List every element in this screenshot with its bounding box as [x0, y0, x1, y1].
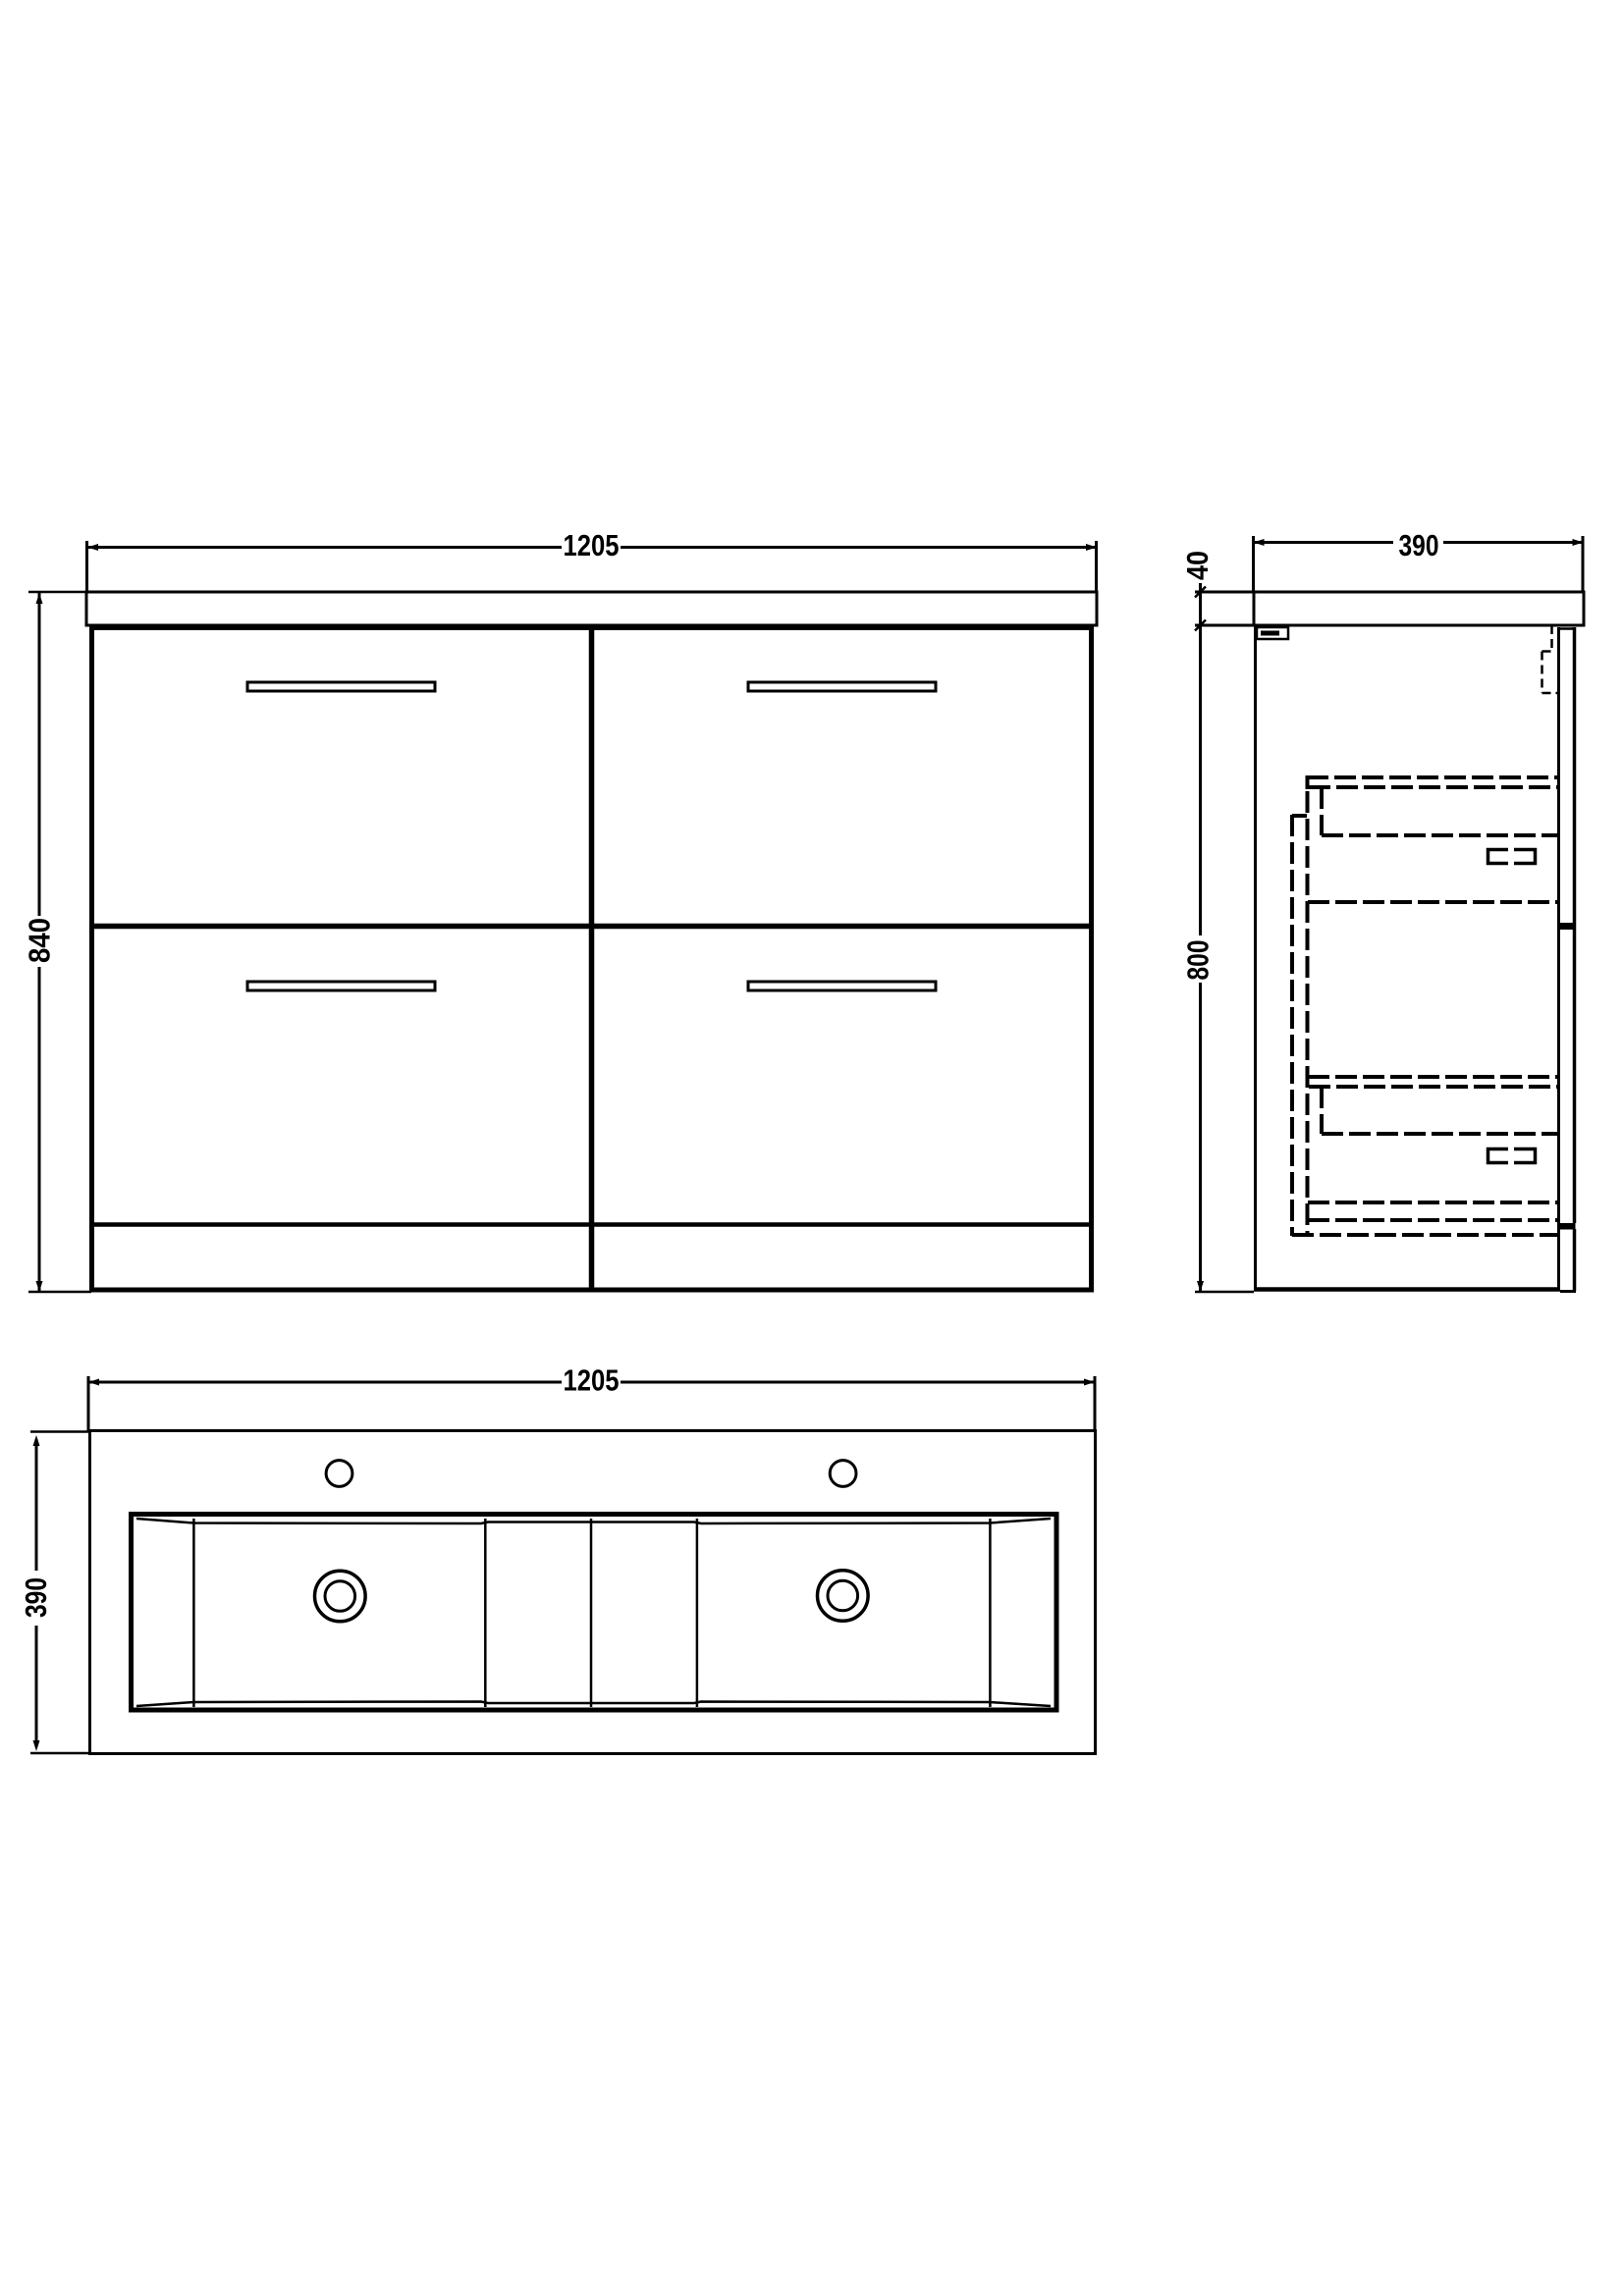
svg-text:800: 800 [1181, 940, 1216, 981]
svg-text:840: 840 [23, 918, 57, 963]
svg-text:390: 390 [1399, 528, 1439, 562]
svg-text:40: 40 [1180, 551, 1215, 580]
svg-text:390: 390 [19, 1577, 53, 1618]
svg-text:1205: 1205 [564, 528, 620, 562]
svg-text:1205: 1205 [564, 1363, 620, 1398]
